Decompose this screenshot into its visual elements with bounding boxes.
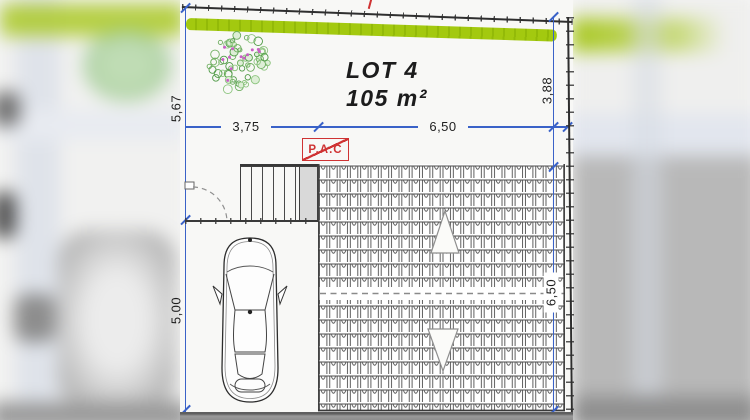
dimension-label-left-upper: 5,67	[169, 89, 184, 129]
dimension-label-right-lower: 6,50	[544, 273, 559, 313]
dimension-label-left-lower: 5,00	[169, 291, 184, 331]
tree-icon	[204, 27, 274, 99]
pac-label: P.A.C	[302, 138, 349, 161]
street-band	[180, 412, 573, 420]
dimension-label-right-upper: 3,88	[540, 71, 555, 111]
lot-area: 105 m²	[346, 84, 428, 112]
site-plan-image: LOT 4 105 m² 5,67 5,00 3,75 6,50 P.A.C	[0, 0, 750, 420]
dimension-label-width-left: 3,75	[221, 119, 271, 134]
lot-plan: LOT 4 105 m² 5,67 5,00 3,75 6,50 P.A.C	[180, 0, 573, 420]
gate-swing-arc	[184, 181, 232, 225]
car-icon	[210, 232, 290, 410]
pac-text: P.A.C	[308, 144, 342, 156]
carport-canopy	[240, 166, 318, 221]
carport-grey-bay	[299, 167, 317, 220]
dimension-label-width-right: 6,50	[418, 119, 468, 134]
lot-title-block: LOT 4 105 m²	[346, 56, 428, 112]
lot-title: LOT 4	[346, 56, 428, 84]
roof-plan	[318, 164, 565, 412]
boundary-red-mark	[368, 0, 373, 9]
